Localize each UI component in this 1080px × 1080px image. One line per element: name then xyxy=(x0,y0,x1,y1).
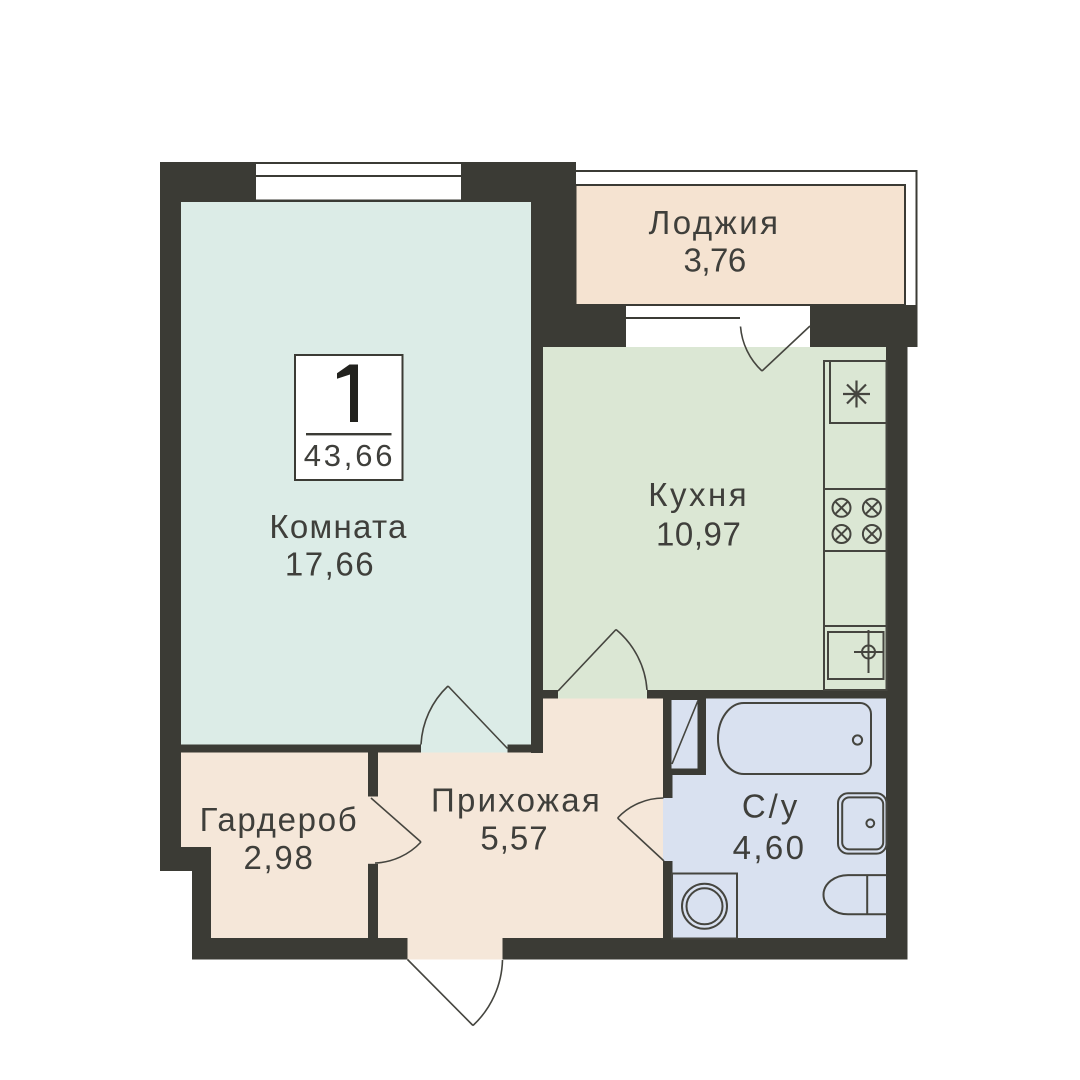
svg-text:Гардероб: Гардероб xyxy=(200,801,359,838)
svg-text:Лоджия: Лоджия xyxy=(649,204,781,241)
svg-text:4,60: 4,60 xyxy=(733,829,807,866)
svg-text:2,98: 2,98 xyxy=(243,839,314,876)
svg-text:5,57: 5,57 xyxy=(480,820,548,857)
svg-text:Прихожая: Прихожая xyxy=(431,782,602,819)
svg-text:3,76: 3,76 xyxy=(683,242,745,279)
svg-text:17,66: 17,66 xyxy=(285,546,375,583)
svg-text:С/у: С/у xyxy=(742,788,800,825)
svg-text:Комната: Комната xyxy=(269,508,407,545)
svg-text:Кухня: Кухня xyxy=(648,476,749,513)
svg-text:10,97: 10,97 xyxy=(656,516,741,553)
svg-text:43,66: 43,66 xyxy=(304,438,396,473)
